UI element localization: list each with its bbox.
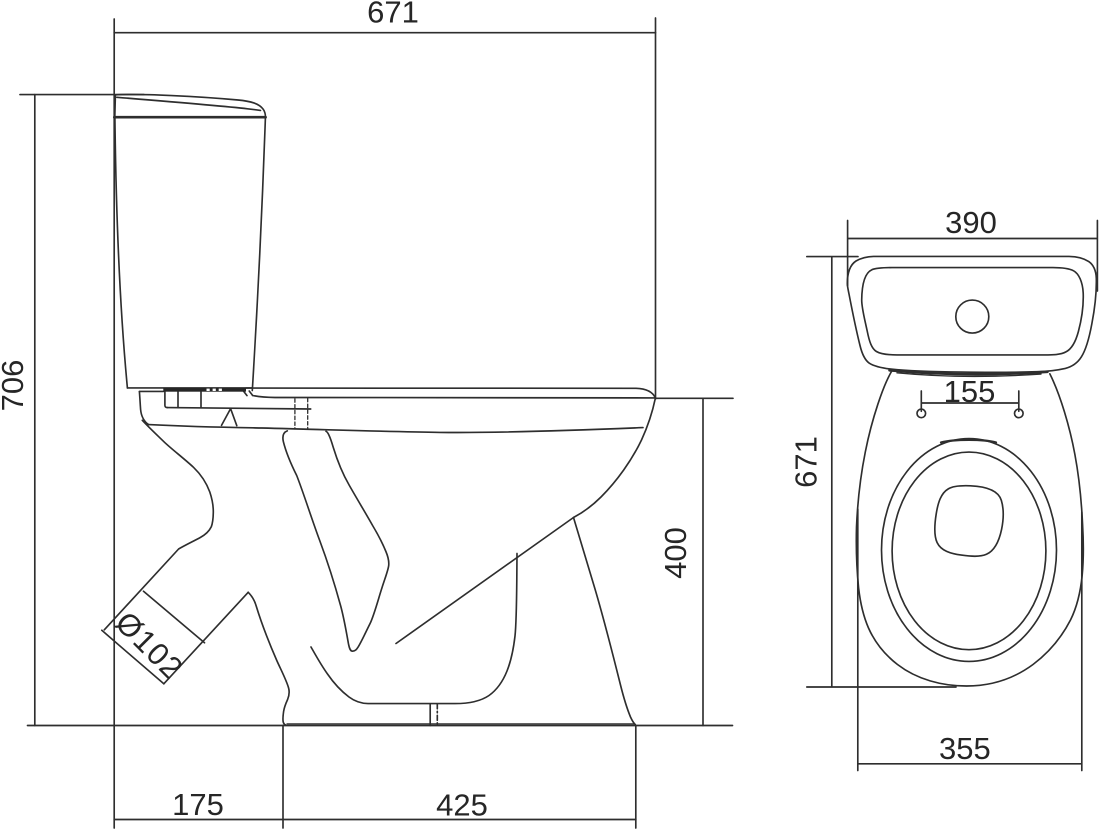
svg-text:390: 390 — [945, 205, 997, 240]
svg-text:671: 671 — [789, 436, 824, 488]
svg-text:175: 175 — [172, 787, 224, 822]
svg-text:706: 706 — [0, 360, 30, 412]
svg-text:155: 155 — [944, 374, 996, 409]
svg-text:425: 425 — [436, 788, 488, 823]
svg-text:671: 671 — [367, 0, 419, 30]
svg-text:400: 400 — [658, 527, 693, 579]
svg-text:355: 355 — [939, 731, 991, 766]
